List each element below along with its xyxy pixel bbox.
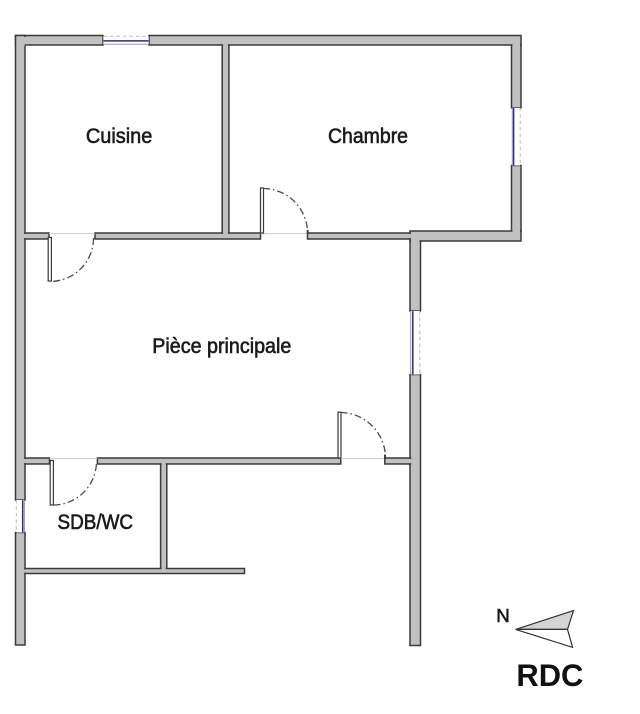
svg-text:RDC: RDC	[516, 657, 583, 693]
svg-text:Pièce principale: Pièce principale	[152, 334, 291, 358]
svg-text:Chambre: Chambre	[328, 124, 408, 148]
svg-text:SDB/WC: SDB/WC	[58, 510, 134, 534]
svg-text:Cuisine: Cuisine	[86, 124, 153, 148]
svg-text:N: N	[496, 605, 510, 626]
